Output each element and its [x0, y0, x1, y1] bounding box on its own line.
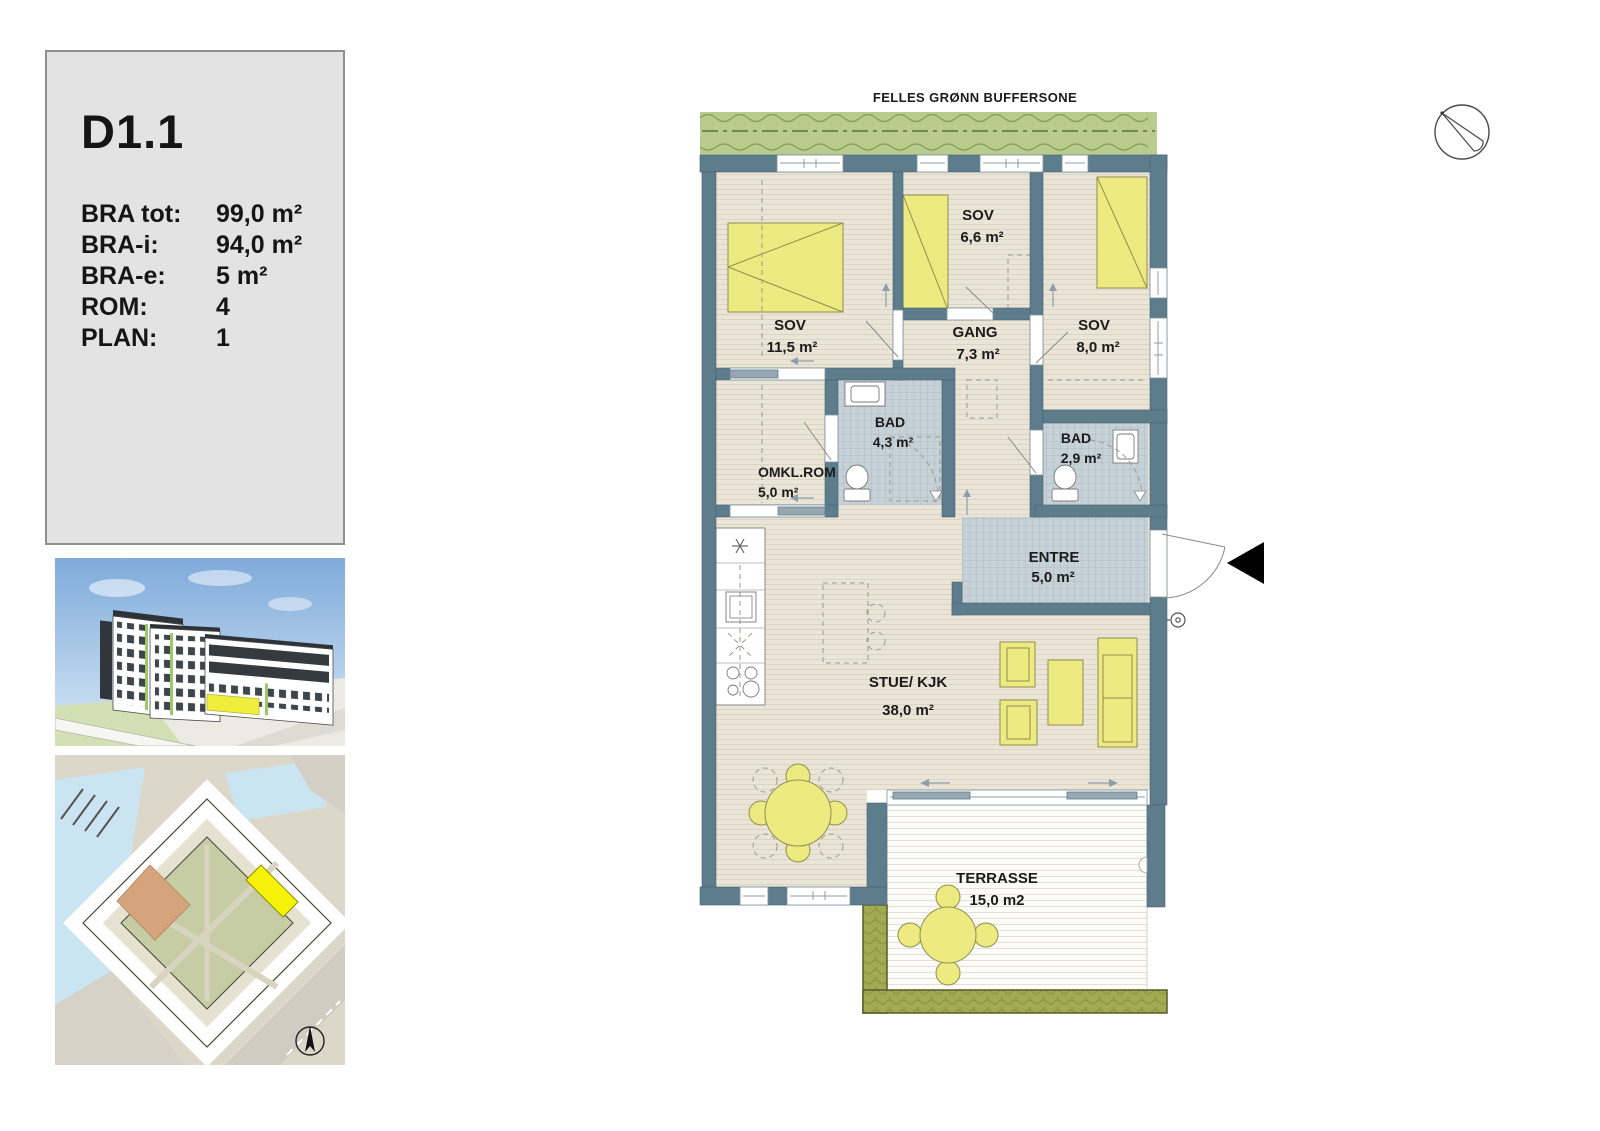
svg-text:7,3 m²: 7,3 m²	[956, 346, 999, 363]
info-row-rom: ROM: 4	[81, 292, 343, 323]
info-label: BRA-i:	[81, 230, 216, 261]
svg-text:2,9 m²: 2,9 m²	[1061, 450, 1102, 466]
svg-text:BAD: BAD	[875, 414, 905, 430]
svg-text:15,0 m2: 15,0 m2	[969, 892, 1024, 909]
green-buffer-zone	[700, 112, 1157, 155]
floorplan-page: D1.1 BRA tot: 99,0 m² BRA-i: 94,0 m² BRA…	[0, 0, 1600, 1131]
bed-sov2	[903, 195, 948, 310]
bed-sov1	[728, 223, 843, 312]
svg-text:5,0 m²: 5,0 m²	[1031, 569, 1074, 586]
window	[787, 887, 850, 905]
info-row-bra-i: BRA-i: 94,0 m²	[81, 230, 343, 261]
info-row-plan: PLAN: 1	[81, 323, 343, 354]
info-value: 99,0 m²	[216, 199, 343, 230]
unit-info-panel: D1.1 BRA tot: 99,0 m² BRA-i: 94,0 m² BRA…	[45, 50, 345, 545]
window	[740, 887, 768, 905]
info-row-bra-tot: BRA tot: 99,0 m²	[81, 199, 343, 230]
svg-text:4,3 m²: 4,3 m²	[873, 434, 914, 450]
svg-text:SOV: SOV	[1078, 317, 1110, 334]
north-compass-icon	[1430, 100, 1494, 164]
svg-text:SOV: SOV	[774, 317, 806, 334]
entrance-door	[1150, 530, 1225, 598]
info-value: 94,0 m²	[216, 230, 343, 261]
outdoor-lamp-icon	[1167, 613, 1185, 627]
sofa	[1098, 638, 1137, 747]
info-label: BRA tot:	[81, 199, 216, 230]
info-label: BRA-e:	[81, 261, 216, 292]
unit-id: D1.1	[81, 104, 343, 159]
window	[1150, 318, 1167, 378]
svg-text:5,0 m²: 5,0 m²	[758, 484, 799, 500]
unit-info-rows: BRA tot: 99,0 m² BRA-i: 94,0 m² BRA-e: 5…	[81, 199, 343, 354]
building-3d-render	[55, 558, 345, 746]
svg-text:8,0 m²: 8,0 m²	[1076, 339, 1119, 356]
svg-text:38,0 m²: 38,0 m²	[882, 702, 934, 719]
terrace-area	[863, 805, 1167, 1013]
window	[980, 155, 1043, 172]
floor-plan: FELLES GRØNN BUFFERSONE	[690, 85, 1290, 1015]
sliding-door	[778, 507, 825, 515]
info-label: PLAN:	[81, 323, 216, 354]
info-row-bra-e: BRA-e: 5 m²	[81, 261, 343, 292]
info-label: ROM:	[81, 292, 216, 323]
svg-text:SOV: SOV	[962, 207, 994, 224]
info-value: 5 m²	[216, 261, 343, 292]
planter-strip	[863, 990, 1167, 1013]
kitchen-counter	[716, 528, 765, 705]
svg-text:STUE/ KJK: STUE/ KJK	[869, 674, 948, 691]
svg-text:6,6 m²: 6,6 m²	[960, 229, 1003, 246]
svg-text:GANG: GANG	[953, 324, 998, 341]
window	[777, 155, 843, 172]
site-plan-thumbnail	[55, 755, 345, 1065]
svg-text:BAD: BAD	[1061, 430, 1091, 446]
window	[917, 155, 948, 172]
info-value: 4	[216, 292, 343, 323]
bed-sov3	[1097, 177, 1147, 288]
window	[1150, 268, 1167, 298]
svg-text:11,5 m²: 11,5 m²	[767, 339, 818, 356]
armchair	[1000, 642, 1035, 687]
svg-text:OMKL.ROM: OMKL.ROM	[758, 464, 836, 480]
coffee-table	[1048, 660, 1083, 725]
sliding-door	[730, 370, 778, 378]
window	[1062, 155, 1088, 172]
buffer-zone-label: FELLES GRØNN BUFFERSONE	[873, 90, 1077, 105]
svg-text:ENTRE: ENTRE	[1029, 549, 1080, 566]
armchair	[1000, 700, 1037, 745]
entrance-arrow-icon	[1227, 542, 1264, 584]
info-value: 1	[216, 323, 343, 354]
svg-text:TERRASSE: TERRASSE	[956, 870, 1038, 887]
